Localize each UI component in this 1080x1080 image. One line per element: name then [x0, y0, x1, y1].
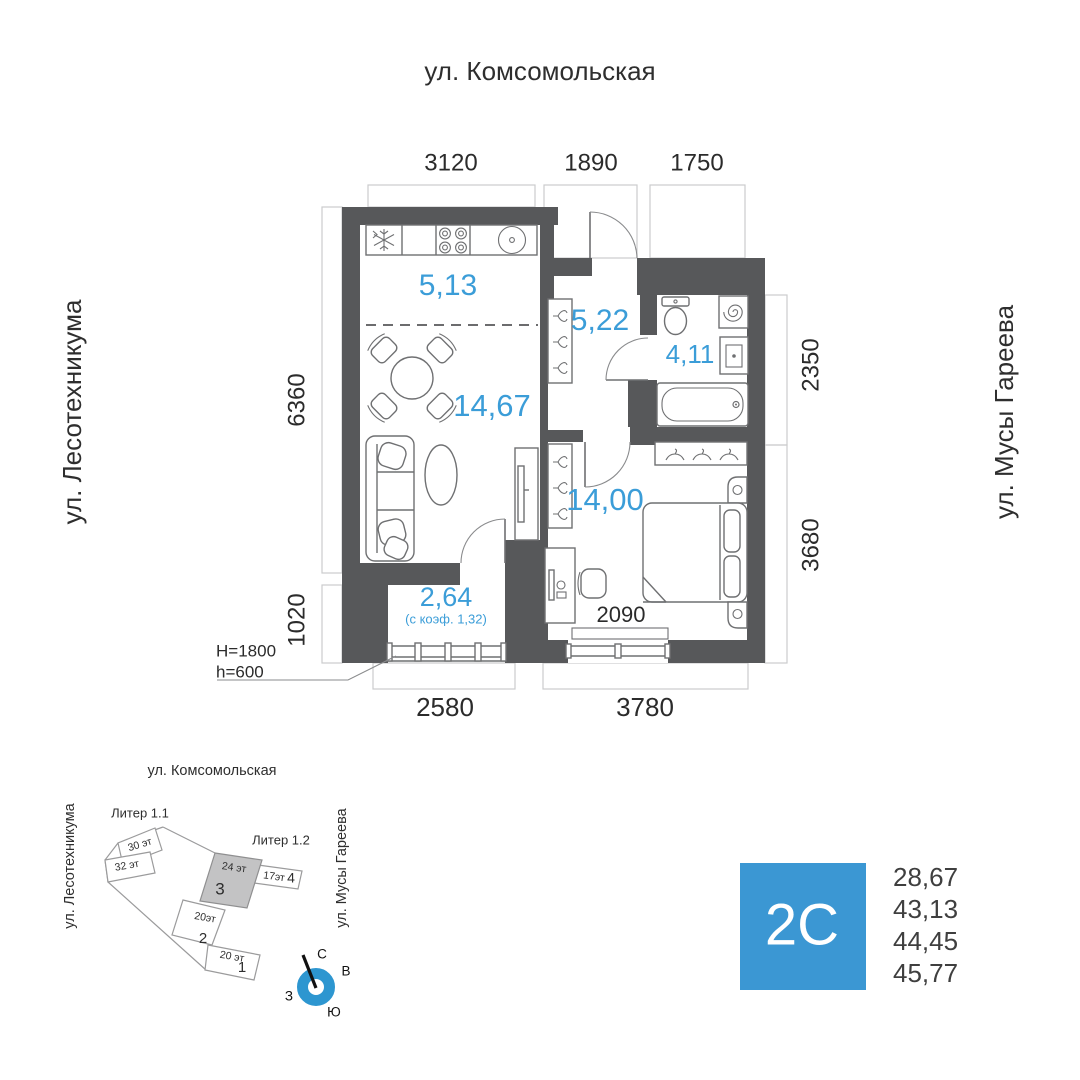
dining-table: [366, 332, 458, 424]
balcony-area-label: 2,64: [420, 582, 473, 612]
unit-area-4: 45,77: [893, 958, 958, 988]
nightstand: [728, 602, 747, 628]
building-num-2: 2: [199, 930, 207, 947]
compass-s: Ю: [327, 1005, 341, 1020]
dim-bottom-2: 3780: [616, 692, 674, 722]
bathroom-door: [606, 338, 648, 380]
dim-top-3: 1750: [670, 149, 723, 176]
dim-left-1: 6360: [283, 373, 310, 426]
compass-w: З: [285, 989, 293, 1004]
street-top: ул. Комсомольская: [424, 56, 655, 86]
bedroom-furniture: [545, 442, 747, 628]
toilet-icon: [662, 297, 689, 335]
sofa: [366, 436, 414, 562]
compass-n: С: [317, 947, 327, 962]
entrance-door: [590, 212, 637, 258]
window-sill-chain: [572, 628, 668, 639]
dim-bottom-1: 2580: [416, 692, 474, 722]
unit-area-1: 28,67: [893, 862, 958, 892]
balcony-glazing: [387, 643, 506, 661]
dim-bedroom-window: 2090: [597, 602, 646, 627]
bathtub-icon: [657, 383, 748, 426]
bed: [643, 503, 747, 602]
rug: [425, 445, 457, 505]
nightstand: [728, 477, 747, 503]
liter-2-label: Литер 1.2: [252, 832, 310, 847]
balcony-coef-note: (с коэф. 1,32): [405, 611, 487, 626]
dim-top-2: 1890: [564, 149, 617, 176]
bedroom-window: [566, 628, 670, 663]
hall-area-label: 5,22: [571, 304, 629, 337]
kitchen-counter: [366, 225, 537, 255]
bathroom-sink-icon: [720, 337, 748, 374]
compass-icon: С В З Ю: [285, 947, 351, 1020]
living-area-label: 14,67: [453, 388, 531, 423]
wardrobe: [655, 442, 747, 465]
sitemap-street-top: ул. Комсомольская: [148, 763, 277, 779]
street-right: ул. Мусы Гареева: [989, 304, 1019, 519]
kitchen-area-label: 5,13: [419, 269, 477, 302]
sill-note: h=600: [216, 662, 264, 681]
building-num-4: 4: [287, 870, 295, 886]
hallway-fixtures: [548, 299, 572, 383]
lintel-note: H=1800: [216, 641, 276, 660]
desk: [545, 548, 575, 623]
washing-machine-icon: [719, 296, 748, 328]
bedroom-door: [585, 442, 630, 487]
unit-area-2: 43,13: [893, 894, 958, 924]
apartment-plan-card: 5,13 5,22 4,11 14,67 14,00 2,64 (с коэф.…: [0, 0, 1080, 1080]
desk-chair: [578, 569, 606, 598]
compass-e: В: [341, 964, 350, 979]
street-left: ул. Лесотехникума: [57, 299, 87, 524]
dim-right-1: 2350: [797, 338, 824, 391]
dim-right-2: 3680: [797, 518, 824, 571]
tv-cabinet: [515, 448, 538, 540]
building-num-3: 3: [215, 879, 224, 898]
unit-area-3: 44,45: [893, 926, 958, 956]
bathroom-area-label: 4,11: [666, 339, 715, 369]
sitemap-street-right: ул. Мусы Гареева: [334, 807, 350, 927]
balcony-door: [461, 519, 505, 563]
floor-plan-figure: 5,13 5,22 4,11 14,67 14,00 2,64 (с коэф.…: [0, 0, 1080, 1080]
liter-1-label: Литер 1.1: [111, 805, 169, 820]
bedroom-area-label: 14,00: [566, 482, 644, 517]
dim-top-1: 3120: [424, 149, 477, 176]
unit-type-label: 2C: [765, 892, 839, 957]
sitemap-street-left: ул. Лесотехникума: [62, 802, 78, 928]
building-num-1: 1: [238, 959, 246, 976]
unit-card[interactable]: 2C 28,67 43,13 44,45 45,77: [740, 862, 958, 990]
computer-icon: [549, 570, 554, 600]
dim-left-2: 1020: [283, 593, 310, 646]
site-map: ул. Комсомольская ул. Лесотехникума ул. …: [62, 763, 351, 1020]
living-room-furniture: [366, 332, 538, 562]
